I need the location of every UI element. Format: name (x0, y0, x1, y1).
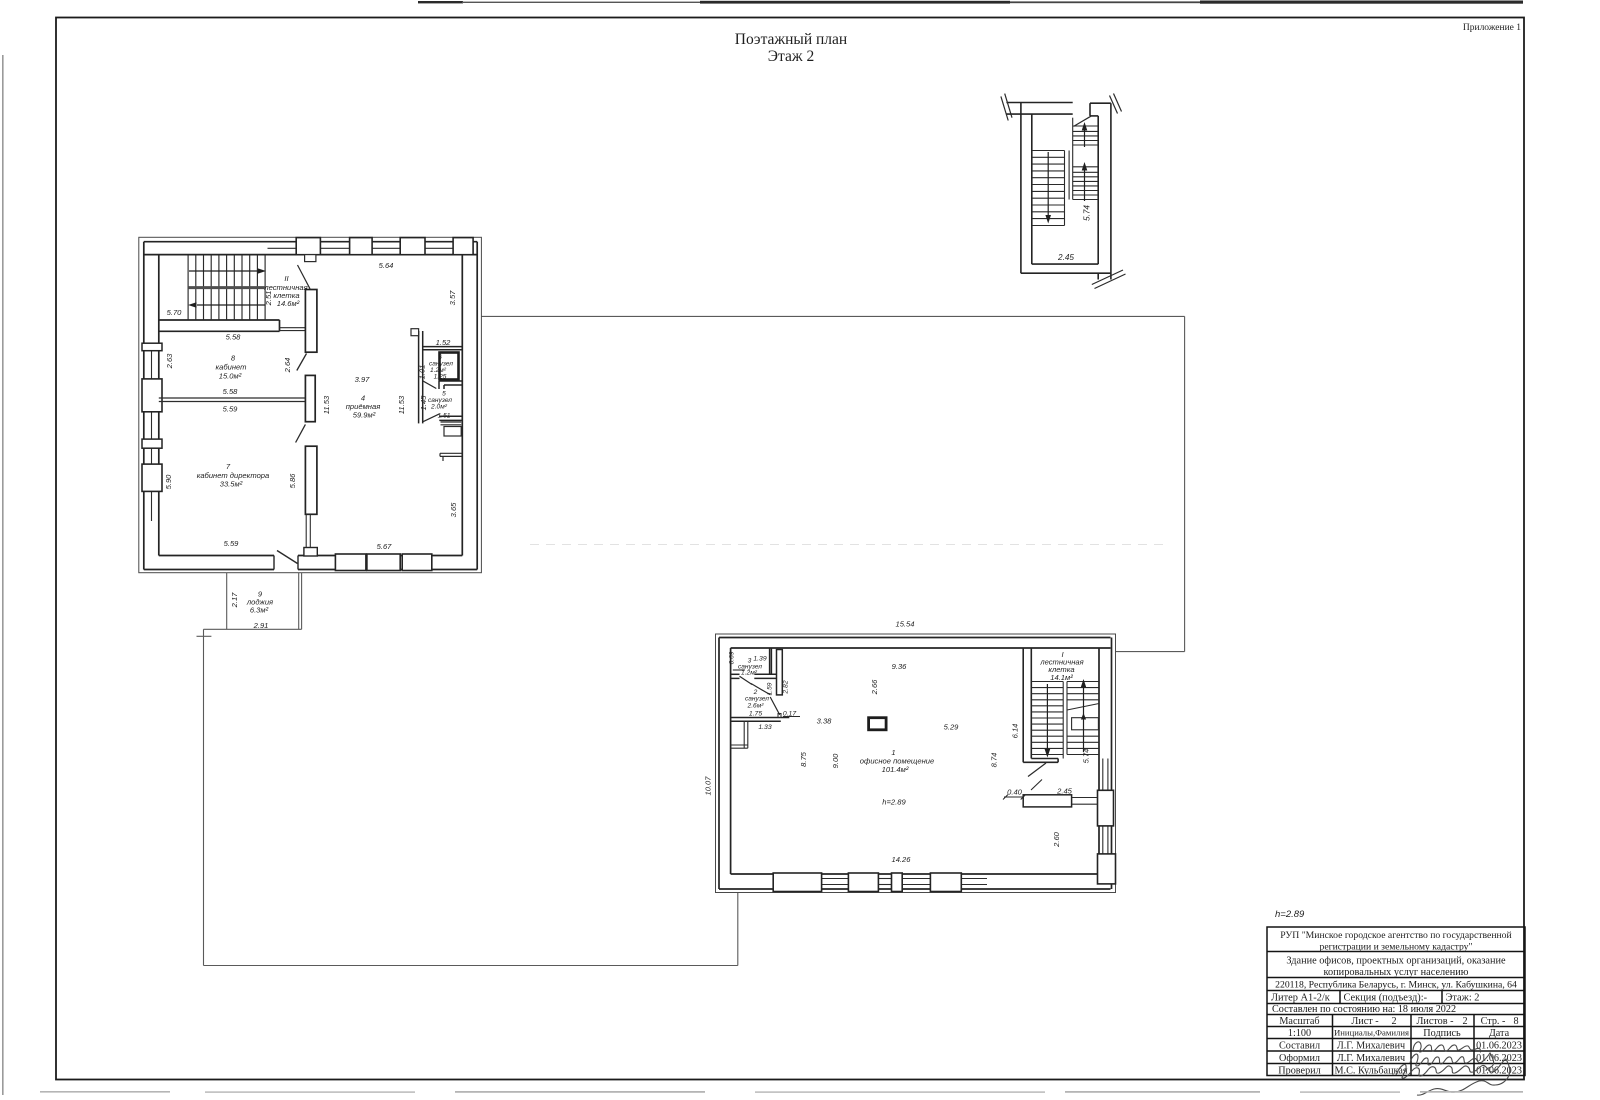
svg-text:5.59: 5.59 (223, 405, 239, 414)
svg-text:Оформил: Оформил (1279, 1053, 1320, 1064)
svg-text:5.90: 5.90 (164, 474, 173, 490)
svg-text:2.0м²: 2.0м² (430, 404, 448, 411)
svg-text:Составил: Составил (1279, 1041, 1320, 1052)
svg-text:Инициалы,Фамилия: Инициалы,Фамилия (1334, 1028, 1409, 1038)
svg-text:0.17: 0.17 (783, 711, 796, 718)
svg-text:10.07: 10.07 (704, 776, 713, 796)
svg-text:5.67: 5.67 (377, 542, 393, 551)
svg-text:5.58: 5.58 (223, 387, 239, 396)
svg-text:1.75: 1.75 (749, 711, 762, 718)
svg-text:6.14: 6.14 (1011, 724, 1020, 739)
svg-text:5.74: 5.74 (1083, 205, 1092, 221)
svg-text:220118, Республика Беларусь, г: 220118, Республика Беларусь, г. Минск, у… (1275, 980, 1517, 991)
svg-text:15.0м²: 15.0м² (219, 372, 242, 381)
svg-text:h=2.89: h=2.89 (1275, 909, 1305, 920)
svg-text:санузел: санузел (745, 696, 769, 703)
svg-text:14.6м²: 14.6м² (277, 299, 300, 308)
svg-text:Здание офисов, проектных орган: Здание офисов, проектных организаций, ок… (1286, 956, 1506, 967)
svg-text:5.64: 5.64 (379, 261, 394, 270)
svg-text:1.59: 1.59 (767, 682, 774, 695)
svg-text:Подпись: Подпись (1423, 1028, 1461, 1039)
svg-text:1.25: 1.25 (434, 374, 447, 381)
svg-text:5.29: 5.29 (944, 723, 960, 732)
svg-text:Стр. -: Стр. - (1481, 1016, 1506, 1027)
svg-text:14.26: 14.26 (891, 855, 911, 864)
svg-text:5.70: 5.70 (167, 308, 183, 317)
svg-text:3.38: 3.38 (817, 717, 833, 726)
svg-text:Л.Г. Михалевич: Л.Г. Михалевич (1337, 1041, 1405, 1052)
svg-text:3.97: 3.97 (355, 375, 371, 384)
svg-text:15.54: 15.54 (895, 620, 914, 629)
svg-text:8.74: 8.74 (990, 753, 999, 768)
svg-text:Составлен по состоянию на: 18: Составлен по состоянию на: 18 июля 2022 (1272, 1004, 1456, 1015)
svg-text:2.45: 2.45 (1057, 253, 1074, 262)
svg-text:101.4м²: 101.4м² (882, 765, 909, 774)
svg-text:копировальных услуг населению: копировальных услуг населению (1324, 967, 1469, 978)
svg-text:2.60: 2.60 (1052, 831, 1061, 848)
svg-text:6.3м²: 6.3м² (250, 606, 269, 615)
svg-text:11.53: 11.53 (322, 395, 331, 414)
svg-text:33.5м²: 33.5м² (220, 480, 243, 489)
svg-text:1.45: 1.45 (419, 395, 428, 411)
svg-text:Приложение 1: Приложение 1 (1463, 23, 1521, 33)
svg-text:Этаж 2: Этаж 2 (768, 48, 814, 65)
svg-text:Лист -: Лист - (1351, 1016, 1379, 1027)
svg-text:01.06.2023: 01.06.2023 (1476, 1041, 1522, 1052)
svg-text:2.45: 2.45 (1056, 787, 1073, 796)
svg-text:01.06.2023: 01.06.2023 (1476, 1053, 1522, 1064)
svg-text:5.58: 5.58 (226, 333, 242, 342)
svg-text:регистрации и земельному кадас: регистрации и земельному кадастру" (1320, 942, 1473, 953)
svg-text:Дата: Дата (1489, 1028, 1510, 1039)
svg-text:3.57: 3.57 (448, 290, 457, 306)
svg-text:5.74: 5.74 (1082, 749, 1091, 764)
svg-text:2.66: 2.66 (870, 679, 879, 696)
svg-text:1:100: 1:100 (1288, 1028, 1311, 1039)
svg-text:8: 8 (1513, 1016, 1518, 1027)
svg-text:1.01: 1.01 (418, 365, 427, 380)
svg-text:2: 2 (1391, 1016, 1396, 1027)
svg-text:2.64: 2.64 (283, 358, 292, 374)
svg-text:РУП "Минское городское агентст: РУП "Минское городское агентство по госу… (1280, 930, 1511, 941)
svg-text:9.36: 9.36 (892, 662, 908, 671)
svg-text:Этаж: 2: Этаж: 2 (1446, 993, 1480, 1004)
svg-text:1.39: 1.39 (753, 656, 766, 663)
svg-text:5.59: 5.59 (224, 539, 240, 548)
svg-text:2.91: 2.91 (253, 621, 269, 630)
svg-text:1.2м²: 1.2м² (741, 670, 758, 677)
svg-text:Листов -: Листов - (1416, 1016, 1454, 1027)
svg-text:1.33: 1.33 (758, 724, 771, 731)
svg-text:h=2.89: h=2.89 (882, 798, 906, 807)
svg-text:3.65: 3.65 (449, 502, 458, 518)
svg-text:11.53: 11.53 (397, 395, 406, 414)
svg-text:2.17: 2.17 (230, 592, 239, 609)
svg-text:Поэтажный план: Поэтажный план (735, 31, 847, 48)
svg-text:2.63: 2.63 (165, 353, 174, 370)
svg-text:14.1м²: 14.1м² (1050, 673, 1073, 682)
svg-text:9.00: 9.00 (831, 753, 840, 769)
svg-text:2.6м²: 2.6м² (747, 703, 765, 710)
svg-text:кабинет: кабинет (216, 363, 247, 372)
svg-text:5.86: 5.86 (288, 473, 297, 489)
svg-text:1.52: 1.52 (436, 338, 452, 347)
svg-text:М.С. Кульбацкая: М.С. Кульбацкая (1334, 1065, 1407, 1076)
svg-text:2.82: 2.82 (783, 680, 790, 694)
svg-text:Литер А1-2/к: Литер А1-2/к (1271, 993, 1331, 1004)
svg-text:59.9м²: 59.9м² (353, 411, 376, 420)
svg-text:1.51: 1.51 (438, 413, 451, 420)
svg-text:0.40: 0.40 (1007, 788, 1023, 797)
svg-text:Секция (подъезд):-: Секция (подъезд):- (1344, 993, 1428, 1004)
svg-text:2.51: 2.51 (264, 291, 273, 307)
svg-text:0.69: 0.69 (729, 651, 736, 664)
svg-text:2: 2 (1462, 1016, 1467, 1027)
svg-text:Масштаб: Масштаб (1279, 1016, 1319, 1027)
svg-text:8.75: 8.75 (799, 751, 808, 767)
svg-text:Проверил: Проверил (1278, 1065, 1320, 1076)
svg-text:Л.Г. Михалевич: Л.Г. Михалевич (1337, 1053, 1405, 1064)
